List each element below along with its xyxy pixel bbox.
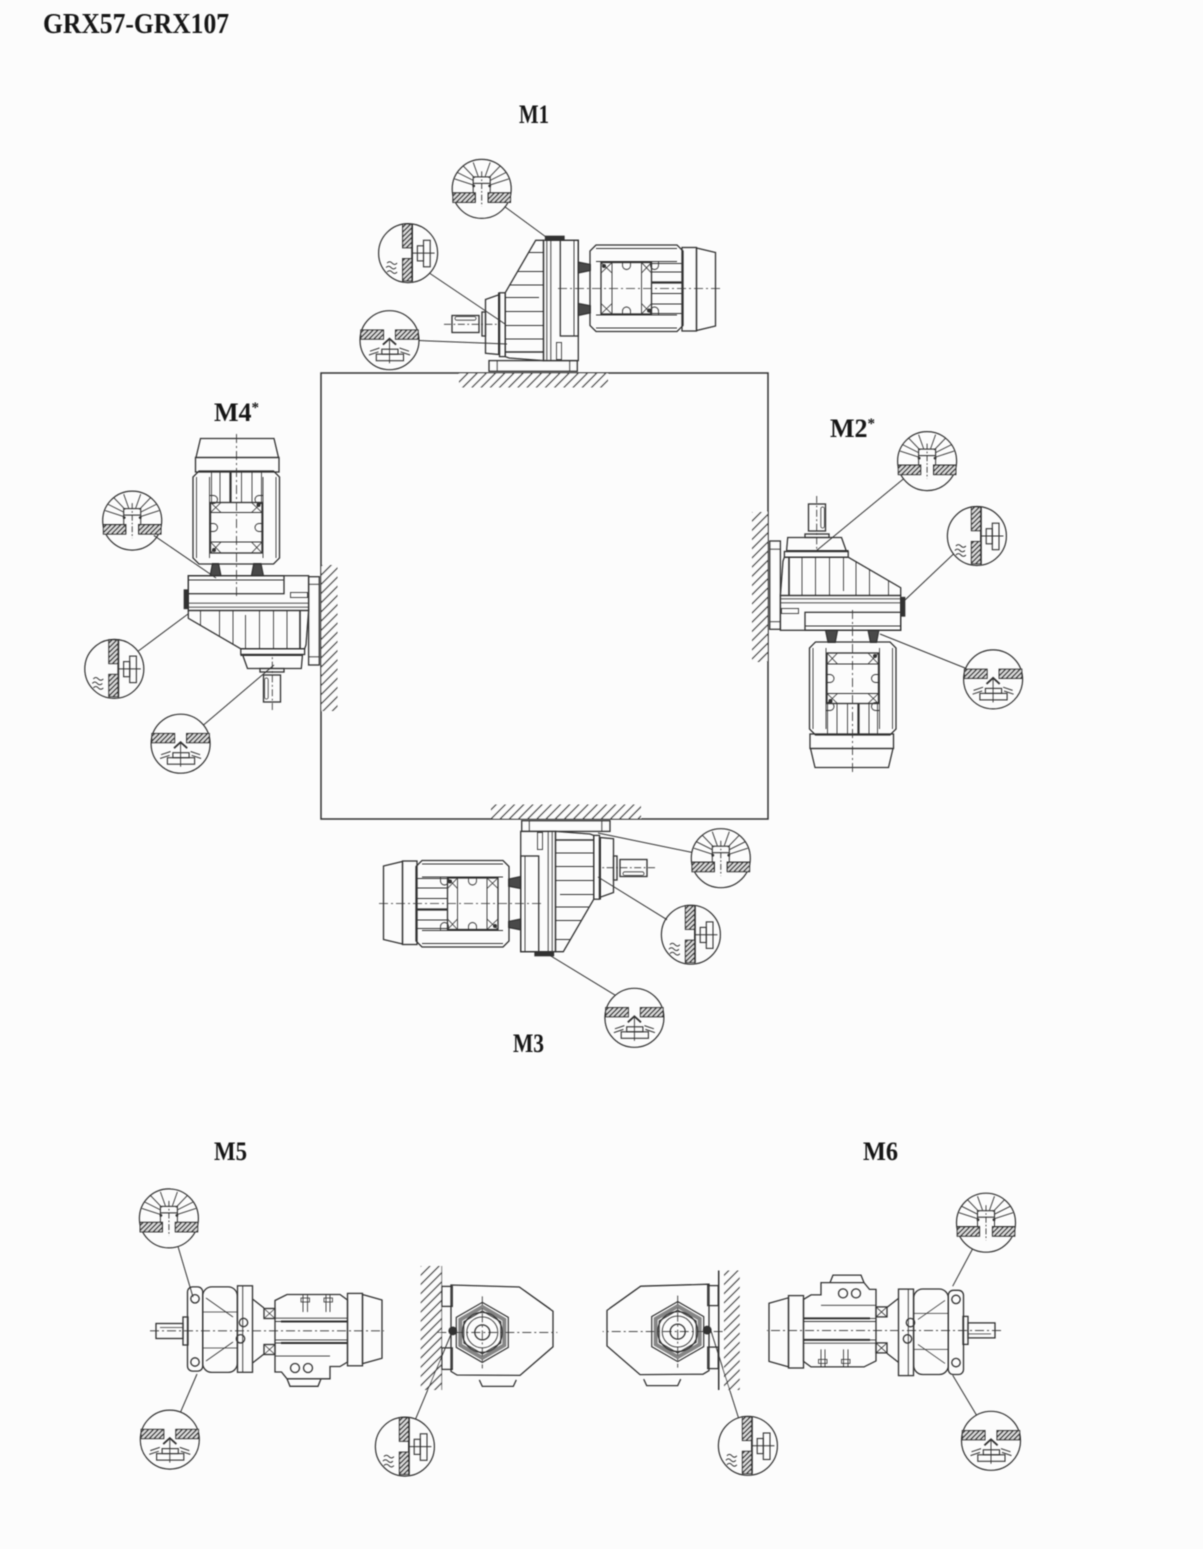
- svg-text:M2*: M2*: [830, 414, 875, 443]
- svg-text:M3: M3: [513, 1029, 544, 1058]
- svg-text:M5: M5: [214, 1137, 247, 1166]
- svg-text:GRX57-GRX107: GRX57-GRX107: [43, 9, 229, 40]
- svg-text:M4*: M4*: [214, 398, 259, 427]
- svg-text:M1: M1: [519, 100, 549, 129]
- svg-text:M6: M6: [863, 1137, 898, 1166]
